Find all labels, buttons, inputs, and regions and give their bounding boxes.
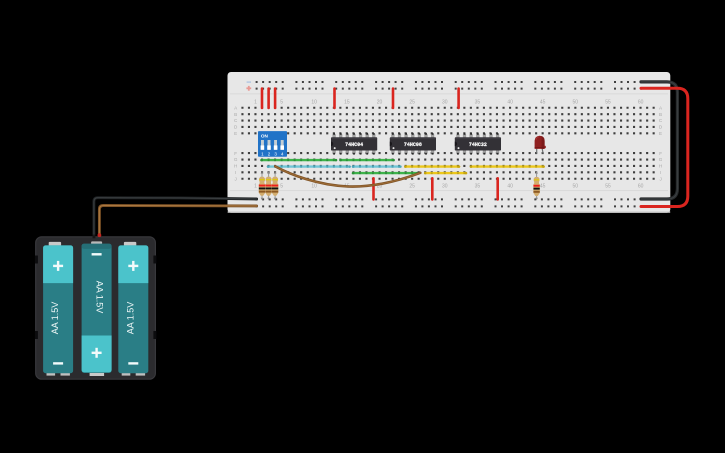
svg-text:55: 55 <box>605 183 611 189</box>
svg-text:40: 40 <box>507 183 513 189</box>
svg-text:55: 55 <box>605 100 611 106</box>
svg-text:H: H <box>234 164 237 169</box>
svg-text:ON: ON <box>261 134 269 139</box>
svg-text:74HC08: 74HC08 <box>404 142 422 148</box>
svg-text:1: 1 <box>254 100 257 106</box>
svg-text:AA 1.5V: AA 1.5V <box>95 281 105 314</box>
svg-text:25: 25 <box>409 100 415 106</box>
svg-text:AA 1.5V: AA 1.5V <box>125 302 135 335</box>
svg-text:35: 35 <box>475 100 481 106</box>
svg-text:E: E <box>659 131 662 136</box>
svg-text:30: 30 <box>442 183 448 189</box>
svg-text:74HC04: 74HC04 <box>345 142 363 148</box>
svg-text:5: 5 <box>280 183 283 189</box>
svg-text:5: 5 <box>280 100 283 106</box>
svg-text:45: 45 <box>540 100 546 106</box>
svg-text:60: 60 <box>638 183 644 189</box>
svg-text:50: 50 <box>573 100 579 106</box>
svg-text:H: H <box>659 164 662 169</box>
svg-text:G: G <box>659 157 663 162</box>
svg-text:74HC32: 74HC32 <box>469 142 487 148</box>
svg-text:10: 10 <box>311 100 317 106</box>
svg-text:B: B <box>659 112 662 117</box>
svg-text:J: J <box>659 177 661 182</box>
svg-text:G: G <box>234 157 238 162</box>
svg-text:25: 25 <box>409 183 415 189</box>
svg-text:AA 1.5V: AA 1.5V <box>50 302 60 335</box>
svg-text:I: I <box>660 170 661 175</box>
svg-text:F: F <box>234 151 237 156</box>
svg-text:I: I <box>235 170 236 175</box>
svg-text:60: 60 <box>638 100 644 106</box>
svg-text:1: 1 <box>254 183 257 189</box>
svg-text:15: 15 <box>344 100 350 106</box>
svg-text:35: 35 <box>475 183 481 189</box>
svg-text:30: 30 <box>442 100 448 106</box>
svg-text:10: 10 <box>311 183 317 189</box>
svg-text:E: E <box>234 131 237 136</box>
svg-text:40: 40 <box>507 100 513 106</box>
svg-text:F: F <box>659 151 662 156</box>
svg-text:B: B <box>234 112 237 117</box>
svg-text:20: 20 <box>377 100 383 106</box>
svg-text:50: 50 <box>573 183 579 189</box>
svg-text:J: J <box>235 177 237 182</box>
svg-text:45: 45 <box>540 183 546 189</box>
